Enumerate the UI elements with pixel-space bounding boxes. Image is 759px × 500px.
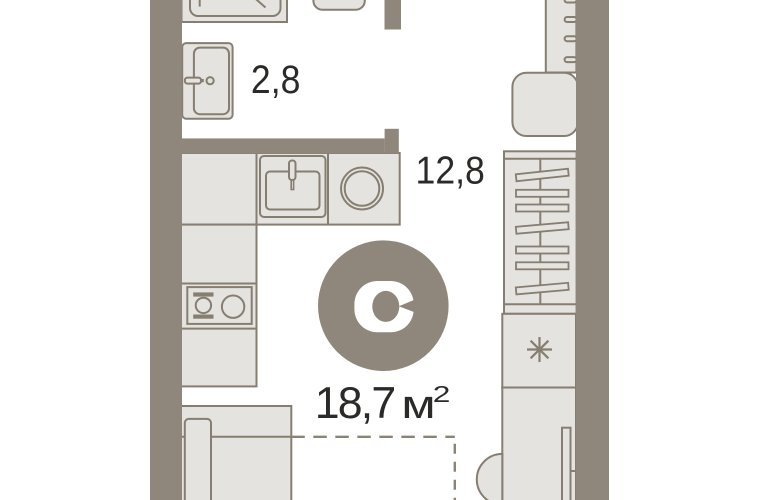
- svg-text:18,7: 18,7: [315, 379, 396, 428]
- svg-text:2,8: 2,8: [251, 58, 300, 102]
- svg-text:2: 2: [433, 381, 451, 407]
- svg-text:12,8: 12,8: [416, 148, 485, 192]
- svg-text:м: м: [401, 382, 435, 427]
